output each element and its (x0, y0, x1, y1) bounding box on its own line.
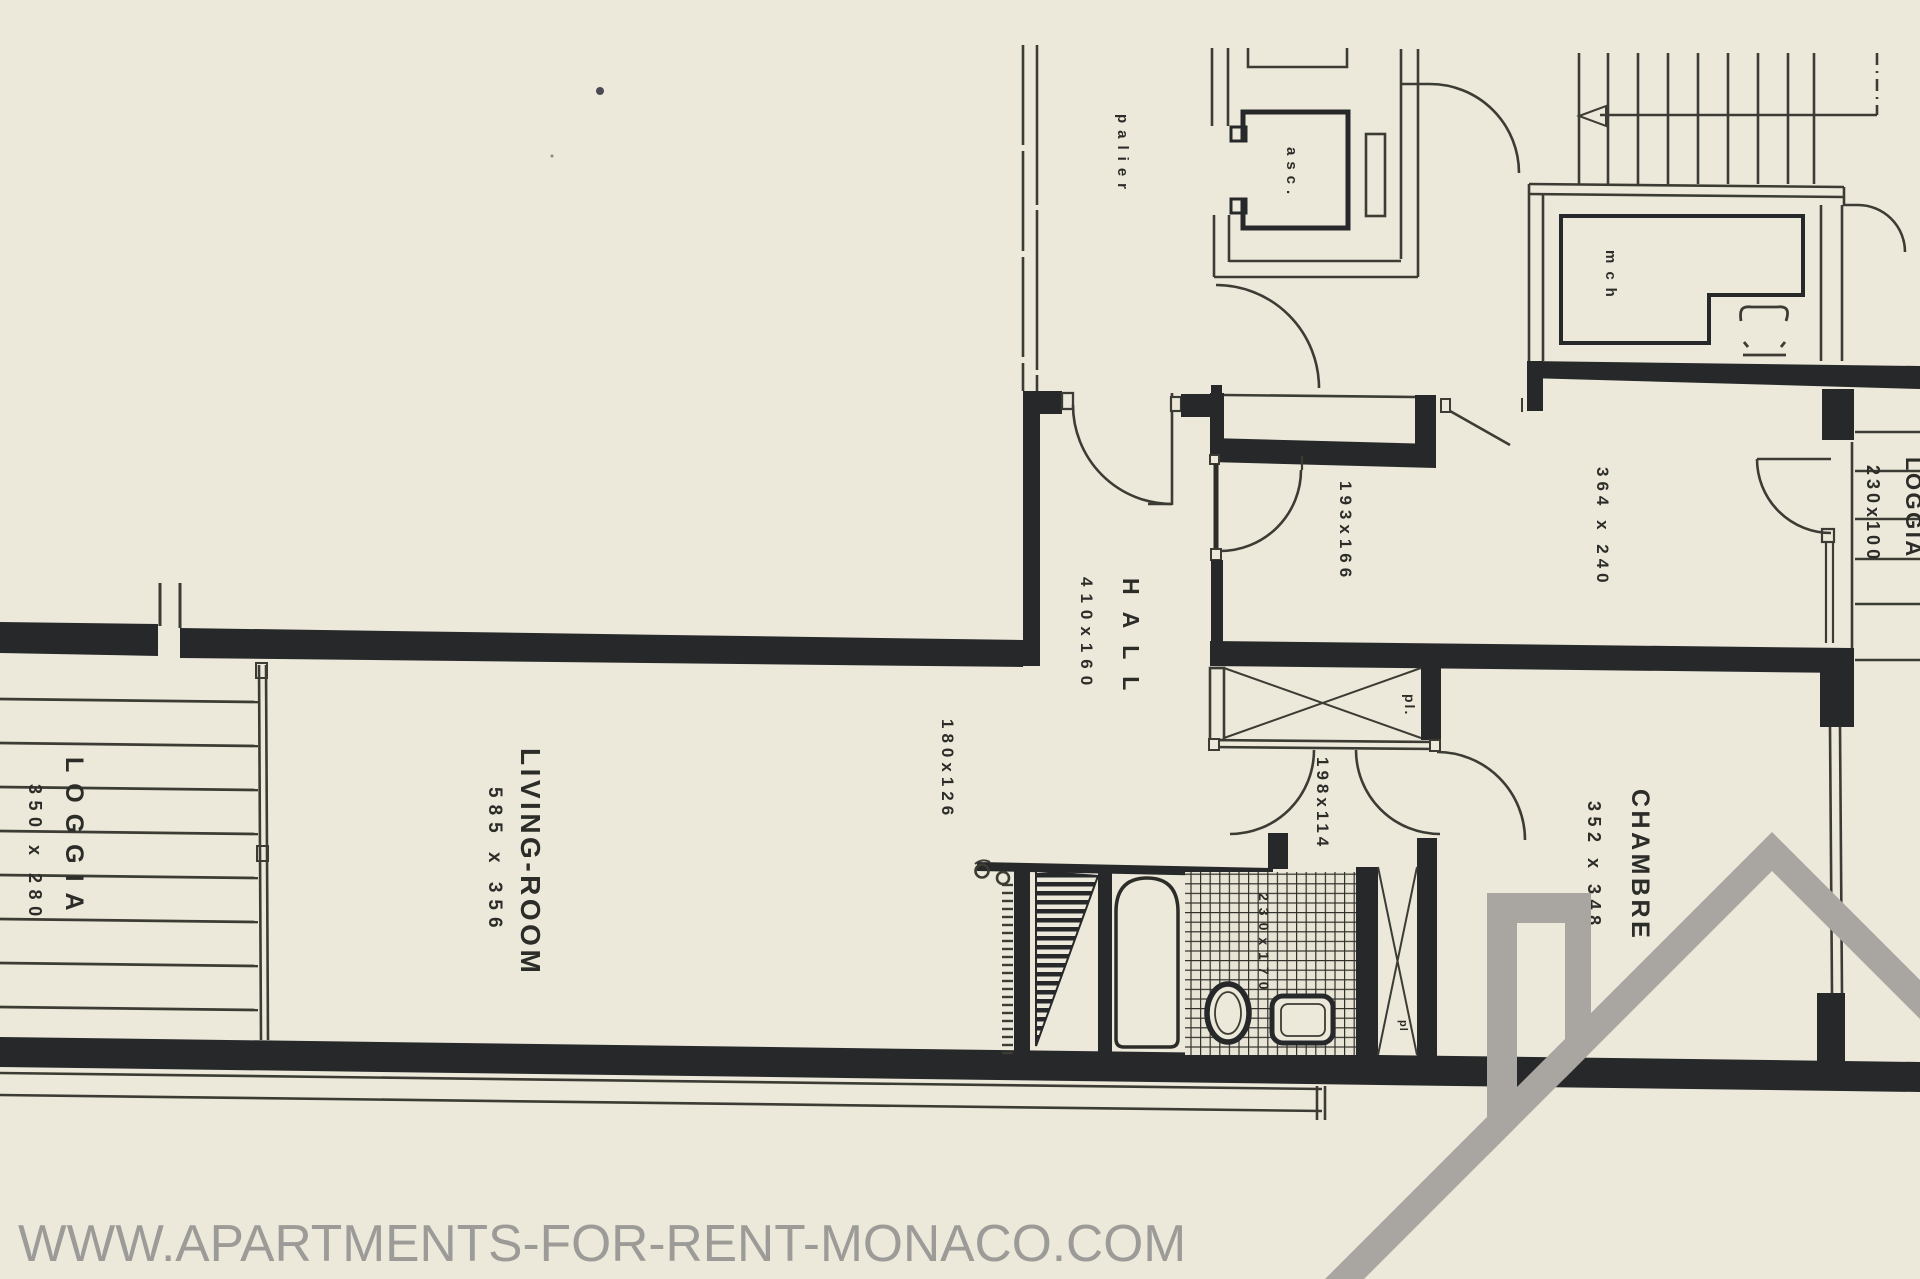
svg-text:585 x 356: 585 x 356 (484, 787, 505, 935)
svg-text:LIVING-ROOM: LIVING-ROOM (515, 748, 546, 976)
svg-text:WWW.APARTMENTS-FOR-RENT-MONACO: WWW.APARTMENTS-FOR-RENT-MONACO.COM (18, 1214, 1186, 1272)
svg-text:pl: pl (1397, 1020, 1409, 1032)
svg-text:230x100: 230x100 (1863, 465, 1883, 563)
svg-text:180x126: 180x126 (938, 719, 957, 820)
svg-text:pl.: pl. (1402, 694, 1418, 716)
svg-text:193x166: 193x166 (1336, 481, 1355, 582)
svg-text:mch: mch (1602, 250, 1619, 305)
svg-text:410x160: 410x160 (1077, 577, 1096, 692)
svg-text:LOGGIA: LOGGIA (1901, 457, 1920, 559)
svg-text:230x170: 230x170 (1256, 893, 1272, 997)
svg-text:palier: palier (1114, 114, 1131, 196)
svg-text:198x114: 198x114 (1313, 757, 1332, 850)
svg-text:CHAMBRE: CHAMBRE (1626, 789, 1654, 941)
svg-text:LOGGIA: LOGGIA (60, 757, 88, 922)
svg-text:asc.: asc. (1283, 147, 1300, 200)
svg-text:HALL: HALL (1118, 578, 1144, 707)
svg-text:364 x 240: 364 x 240 (1593, 467, 1612, 588)
svg-text:350 x 280: 350 x 280 (25, 784, 45, 923)
